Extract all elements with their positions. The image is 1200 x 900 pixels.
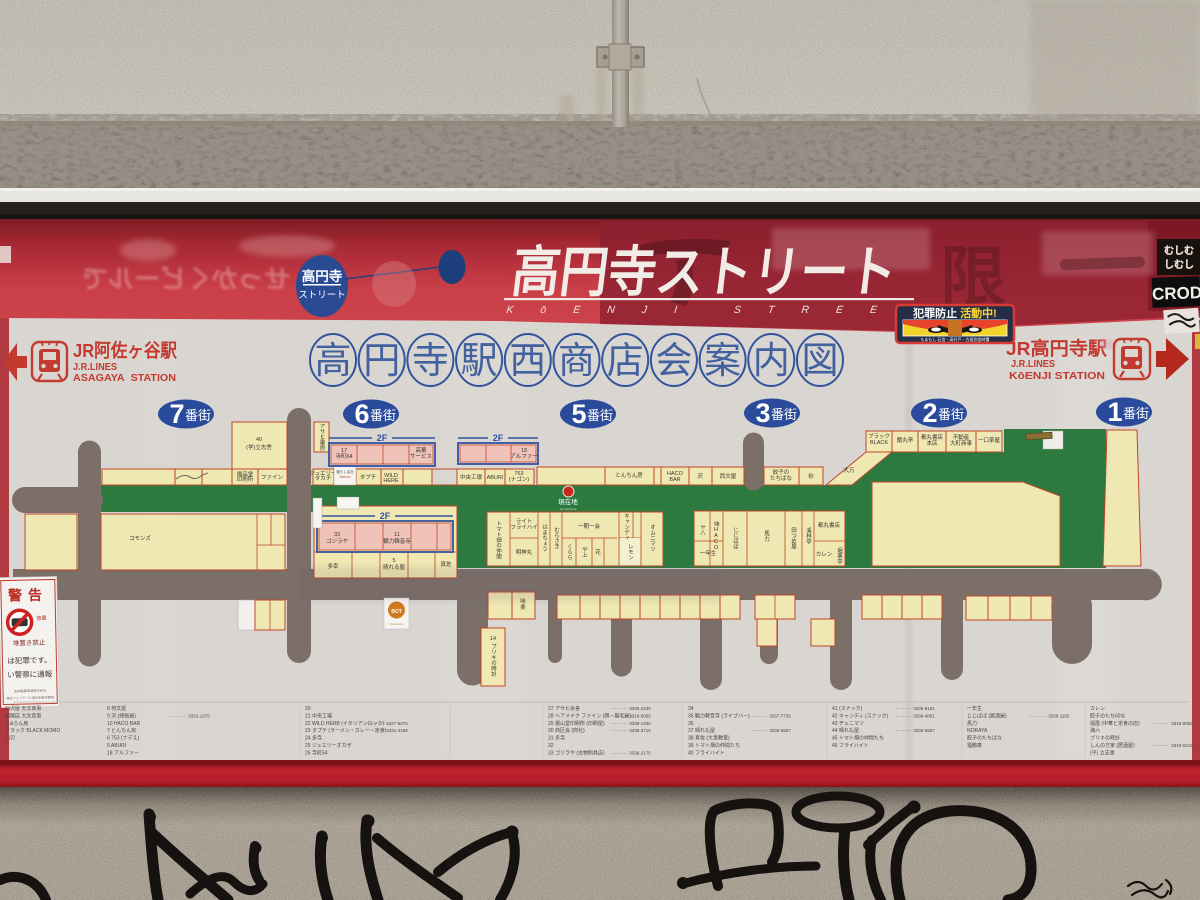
svg-text:You are here: You are here xyxy=(559,507,576,511)
svg-text:沢: 沢 xyxy=(697,472,703,480)
svg-text:39 トマト畑の仲間たち: 39 トマト畑の仲間たち xyxy=(688,742,740,749)
svg-text:サービス: サービス xyxy=(410,452,432,460)
svg-text:大万: 大万 xyxy=(843,466,855,474)
svg-text:30 商区会 (商社): 30 商区会 (商社) xyxy=(548,727,585,734)
svg-text:犯罪防止 活動中!: 犯罪防止 活動中! xyxy=(912,306,997,320)
svg-text:都丸書店: 都丸書店 xyxy=(818,521,841,529)
svg-text:JR阿佐ヶ谷駅: JR阿佐ヶ谷駅 xyxy=(73,340,177,361)
svg-text:西文屋: 西文屋 xyxy=(720,472,737,480)
svg-text:ストリート: ストリート xyxy=(298,290,346,301)
svg-text:たちばな: たちばな xyxy=(770,474,793,482)
svg-text:CROD: CROD xyxy=(1152,283,1200,304)
svg-text:NORAYA: NORAYA xyxy=(967,728,988,734)
svg-text:ファイン: ファイン xyxy=(261,474,284,481)
svg-text:馬力: 馬力 xyxy=(967,720,977,727)
svg-text:番街: 番街 xyxy=(587,408,613,423)
svg-text:しんの方家 (居酒屋): しんの方家 (居酒屋) xyxy=(1090,742,1135,749)
svg-text:内: 内 xyxy=(753,340,790,381)
svg-text:40: 40 xyxy=(256,437,262,443)
svg-text:5: 5 xyxy=(571,399,586,429)
svg-text:観力韓音寺: 観力韓音寺 xyxy=(383,537,411,545)
svg-text:2: 2 xyxy=(922,398,937,428)
svg-text:や上: や上 xyxy=(581,546,588,558)
svg-text:駅: 駅 xyxy=(461,340,498,381)
svg-text:············ 3330-5587: ············ 3330-5587 xyxy=(894,728,935,733)
svg-text:45 トマト畑の仲間たち: 45 トマト畑の仲間たち xyxy=(832,735,884,742)
svg-text:ブラック: ブラック xyxy=(868,432,890,440)
svg-text:番街: 番街 xyxy=(185,408,211,423)
svg-text:寺: 寺 xyxy=(412,340,449,381)
svg-text:本店: 本店 xyxy=(926,439,938,447)
svg-text:むしむ: むしむ xyxy=(1164,245,1194,257)
svg-text:餃子のたちばな: 餃子のたちばな xyxy=(967,735,1002,742)
svg-text:限: 限 xyxy=(940,240,1006,314)
svg-text:43 ヂェニマツ: 43 ヂェニマツ xyxy=(832,721,864,727)
svg-text:フライハイ: フライハイ xyxy=(510,524,537,531)
svg-text:7: 7 xyxy=(169,399,184,429)
svg-text:餃子のたち60な: 餃子のたち60な xyxy=(1090,712,1126,719)
svg-text:カレン: カレン xyxy=(816,551,833,558)
svg-text:西: 西 xyxy=(509,340,546,381)
svg-text:14: 14 xyxy=(490,636,496,642)
svg-text:ASAGAYA STATION: ASAGAYA STATION xyxy=(73,372,176,384)
svg-text:フラック BLACK MOMO: フラック BLACK MOMO xyxy=(5,728,60,734)
svg-text:アルファー: アルファー xyxy=(510,453,538,460)
svg-text:44 晴れも屋: 44 晴れも屋 xyxy=(832,727,859,734)
svg-text:20: 20 xyxy=(305,706,311,712)
svg-text:1: 1 xyxy=(1107,397,1122,427)
svg-text:46 フライハイト: 46 フライハイト xyxy=(832,743,869,749)
svg-text:じじばば: じじばば xyxy=(732,527,739,551)
svg-text:高円寺: 高円寺 xyxy=(302,268,343,284)
svg-text:Conscious: Conscious xyxy=(390,622,404,626)
svg-text:口沢屋 天文商事: 口沢屋 天文商事 xyxy=(5,705,41,712)
svg-text:BOT: BOT xyxy=(391,609,402,615)
svg-text:5: 5 xyxy=(392,558,395,564)
svg-text:2F: 2F xyxy=(377,433,388,443)
svg-text:············ 3330-5587: ············ 3330-5587 xyxy=(750,728,791,733)
svg-text:············ 3338-3715: ············ 3338-3715 xyxy=(610,728,651,733)
svg-text:············ 3336-8181: ············ 3336-8181 xyxy=(894,706,935,711)
svg-text:アサヒ書房: アサヒ書房 xyxy=(319,423,326,452)
svg-text:············ 3318-0062: ············ 3318-0062 xyxy=(1152,721,1193,726)
svg-text:蘭丸亭: 蘭丸亭 xyxy=(897,436,914,444)
svg-text:············ 3310-0219: ············ 3310-0219 xyxy=(1152,743,1193,748)
svg-text:オムニマツ: オムニマツ xyxy=(649,524,656,552)
svg-text:とんちん房: とんちん房 xyxy=(615,471,643,479)
svg-text:35 観力韓音寺 (ライブバー): 35 観力韓音寺 (ライブバー) xyxy=(688,712,750,719)
svg-text:ヤ八: ヤ八 xyxy=(699,525,706,536)
svg-text:26 寺町54: 26 寺町54 xyxy=(305,750,328,756)
svg-text:3: 3 xyxy=(755,398,770,428)
svg-text:堀果亭: 堀果亭 xyxy=(836,547,843,565)
svg-text:中央工環: 中央工環 xyxy=(460,473,483,481)
svg-text:21 中央工場: 21 中央工場 xyxy=(305,712,332,719)
svg-text:J.R.LINES: J.R.LINES xyxy=(1011,359,1055,370)
svg-text:い警察に通報: い警察に通報 xyxy=(7,669,53,680)
svg-text:Maison: Maison xyxy=(339,475,350,479)
svg-text:福鶴車: 福鶴車 xyxy=(967,742,982,749)
svg-text:カレン: カレン xyxy=(1090,706,1105,712)
svg-text:ブリキの時計: ブリキの時計 xyxy=(490,642,497,678)
svg-text:(平) 立志舎: (平) 立志舎 xyxy=(1090,749,1115,756)
svg-text:もまもし 石信・高井戸・方面別信時署: もまもし 石信・高井戸・方面別信時署 xyxy=(920,336,989,342)
svg-text:寺町64: 寺町64 xyxy=(335,452,352,460)
svg-text:18 アルファー: 18 アルファー xyxy=(107,750,139,756)
svg-text:33: 33 xyxy=(334,532,340,538)
svg-text:口刃: 口刃 xyxy=(5,736,15,742)
svg-text:はまちょう: はまちょう xyxy=(541,524,548,552)
svg-text:(学)立志舎: (学)立志舎 xyxy=(246,443,272,451)
svg-text:花: 花 xyxy=(595,548,601,556)
svg-text:6: 6 xyxy=(354,399,369,429)
svg-text:くらら: くらら xyxy=(566,544,573,562)
svg-text:図: 図 xyxy=(802,340,839,381)
svg-text:ゴジラヤ: ゴジラヤ xyxy=(326,537,349,545)
svg-text:27 アサヒ会舎: 27 アサヒ会舎 xyxy=(548,705,580,712)
svg-text:············ 3310-5055: ············ 3310-5055 xyxy=(610,713,651,718)
svg-text:ち&らん房: ち&らん房 xyxy=(5,720,28,727)
svg-text:トマト畑の仲間: トマト畑の仲間 xyxy=(495,521,502,561)
svg-text:現在地: 現在地 xyxy=(558,497,578,506)
svg-text:末末製菓運道株式会社: 末末製菓運道株式会社 xyxy=(14,688,47,694)
svg-text:高: 高 xyxy=(315,340,352,381)
svg-text:砂: 砂 xyxy=(808,472,814,480)
svg-text:33 ゴリラや (古物制具店): 33 ゴリラや (古物制具店) xyxy=(548,749,605,756)
svg-text:レモン: レモン xyxy=(627,544,634,561)
svg-text:は犯罪です。: は犯罪です。 xyxy=(7,655,51,666)
svg-text:番街: 番街 xyxy=(938,407,964,422)
svg-text:2F: 2F xyxy=(493,433,504,443)
svg-text:真佐: 真佐 xyxy=(440,560,452,568)
svg-text:印刷所: 印刷所 xyxy=(237,475,254,483)
svg-text:一年生: 一年生 xyxy=(967,705,982,712)
svg-text:38 真佐 (大事教室): 38 真佐 (大事教室) xyxy=(688,735,730,742)
svg-text:楽: 楽 xyxy=(520,603,526,611)
svg-text:案: 案 xyxy=(704,340,741,381)
svg-text:円: 円 xyxy=(363,340,400,381)
svg-text:コモンズ: コモンズ xyxy=(129,534,151,542)
svg-text:放置: 放置 xyxy=(36,615,46,622)
svg-text:5 ABURI: 5 ABURI xyxy=(107,743,126,749)
svg-text:しむし: しむし xyxy=(1164,259,1194,271)
svg-text:田つめ屋: 田つめ屋 xyxy=(790,527,797,551)
svg-text:タカチ: タカチ xyxy=(315,474,332,482)
svg-text:············ 3337-7735: ············ 3337-7735 xyxy=(750,713,791,718)
svg-text:············ 3331-1275: ············ 3331-1275 xyxy=(169,713,210,718)
svg-text:11: 11 xyxy=(394,532,400,538)
svg-text:KōENJI STATION: KōENJI STATION xyxy=(1009,370,1105,382)
svg-text:相陽店 大文商事: 相陽店 大文商事 xyxy=(5,712,41,719)
svg-text:株式ジェイアール東日本都市開発: 株式ジェイアール東日本都市開発 xyxy=(6,694,55,700)
svg-text:馬力: 馬力 xyxy=(763,530,770,543)
svg-text:9 沢 (總張屋): 9 沢 (總張屋) xyxy=(107,712,136,719)
svg-text:ABURI: ABURI xyxy=(487,475,504,481)
svg-text:25 ジュエリーオカザ: 25 ジュエリーオカザ xyxy=(305,743,352,749)
svg-text:············ 3330-2435: ············ 3330-2435 xyxy=(610,706,651,711)
svg-text:············ 5327-5275: ············ 5327-5275 xyxy=(367,721,408,726)
svg-text:番街: 番街 xyxy=(370,408,396,423)
svg-text:明神丸: 明神丸 xyxy=(516,548,533,556)
svg-text:むらさき: むらさき xyxy=(553,527,560,550)
svg-text:一口茶屋: 一口茶屋 xyxy=(978,436,1001,444)
svg-text:41 (スナック): 41 (スナック) xyxy=(832,706,863,712)
svg-text:24 多寺: 24 多寺 xyxy=(305,735,322,742)
svg-text:番街: 番街 xyxy=(771,407,797,422)
svg-text:商: 商 xyxy=(558,340,595,381)
svg-text:じじばば (居酒屋): じじばば (居酒屋) xyxy=(967,712,1007,719)
svg-text:············ 3336-4861: ············ 3336-4861 xyxy=(894,713,935,718)
svg-text:············ 3338-1430: ············ 3338-1430 xyxy=(610,721,651,726)
svg-text:HERE: HERE xyxy=(383,478,399,484)
svg-text:············ 3331-4186: ············ 3331-4186 xyxy=(367,728,408,733)
svg-text:JR高円寺駅: JR高円寺駅 xyxy=(1006,338,1108,359)
svg-text:せっかくビールで: せっかくビールで xyxy=(82,264,290,294)
svg-text:34: 34 xyxy=(688,706,694,712)
svg-text:40 フライハイト: 40 フライハイト xyxy=(688,750,725,756)
svg-text:37 晴れも屋: 37 晴れも屋 xyxy=(688,727,715,734)
svg-text:不動産: 不動産 xyxy=(953,433,970,441)
svg-text:29 揚山堂印刷所 (印刷屋): 29 揚山堂印刷所 (印刷屋) xyxy=(548,720,605,727)
svg-text:42 キャンディ (スナック): 42 キャンディ (スナック) xyxy=(832,712,889,719)
svg-text:餃子の: 餃子の xyxy=(773,468,790,476)
svg-text:············ 3336-1182: ············ 3336-1182 xyxy=(1029,713,1070,718)
svg-text:BLACK: BLACK xyxy=(870,440,888,446)
svg-text:10 HACO BAR: 10 HACO BAR xyxy=(107,721,140,727)
svg-text:満六: 満六 xyxy=(1090,727,1100,734)
svg-text:都丸書店: 都丸書店 xyxy=(921,433,944,441)
svg-text:店: 店 xyxy=(607,340,644,381)
svg-text:キャンディ: キャンディ xyxy=(623,513,630,541)
svg-text:ブリキの時計: ブリキの時計 xyxy=(1090,735,1120,742)
svg-text:ライト: ライト xyxy=(516,518,533,525)
svg-text:8 何文屋: 8 何文屋 xyxy=(107,705,126,712)
svg-text:32: 32 xyxy=(548,743,554,749)
svg-text:2F: 2F xyxy=(380,511,391,521)
svg-text:タプチ: タプチ xyxy=(360,473,377,481)
svg-text:7 とんちん房: 7 とんちん房 xyxy=(107,727,136,734)
svg-text:高華: 高華 xyxy=(415,446,427,454)
svg-text:溪林亭: 溪林亭 xyxy=(805,527,812,545)
svg-text:31 多寺: 31 多寺 xyxy=(548,735,565,742)
svg-text:36: 36 xyxy=(688,721,694,727)
svg-text:············ 3336-2175: ············ 3336-2175 xyxy=(610,750,651,755)
svg-text:警告: 警告 xyxy=(8,587,48,604)
svg-text:福もし会社: 福もし会社 xyxy=(336,469,354,474)
svg-text:6 753 (ナデえ): 6 753 (ナデえ) xyxy=(107,735,140,742)
svg-text:会: 会 xyxy=(655,340,692,381)
svg-text:味HACO: 味HACO xyxy=(713,520,720,551)
svg-text:高円寺ストリート: 高円寺ストリート xyxy=(509,241,901,303)
svg-text:(ナゴン): (ナゴン) xyxy=(509,475,529,483)
svg-text:BAR: BAR xyxy=(669,477,680,483)
svg-text:一期一会: 一期一会 xyxy=(578,522,601,530)
svg-text:堀凰 (中華と定食の店): 堀凰 (中華と定食の店) xyxy=(1090,720,1140,727)
svg-text:大町商事: 大町商事 xyxy=(950,439,973,447)
svg-text:番街: 番街 xyxy=(1123,406,1149,421)
